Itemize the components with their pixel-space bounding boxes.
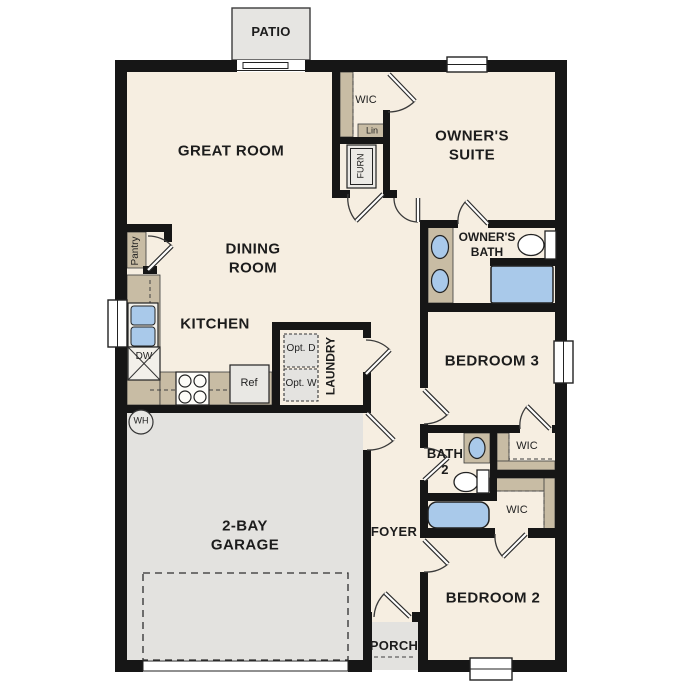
- owners-wic-shelf: [340, 72, 353, 137]
- bedroom2-label: BEDROOM 2: [446, 590, 540, 609]
- owners-suite-window: [447, 57, 487, 72]
- garage-door-opening: [143, 661, 348, 671]
- owners-bath-sink-2: [432, 270, 449, 293]
- bath2-label: BATH 2: [422, 446, 468, 479]
- dining-room-label: DINING ROOM: [203, 240, 303, 278]
- owners-bath-label: OWNER'S BATH: [452, 230, 522, 260]
- wic-bedroom3-label: WIC: [516, 440, 537, 454]
- foyer-label: FOYER: [371, 524, 417, 540]
- bath2-sink: [469, 438, 485, 459]
- dishwasher-label: DW: [136, 351, 153, 364]
- linen-label: Lin: [366, 125, 378, 136]
- kitchen-window: [108, 300, 127, 347]
- owners-suite-label: OWNER'S SUITE: [417, 127, 527, 165]
- owners-bath-tub: [491, 266, 553, 303]
- floor-plan-drawing: [0, 0, 687, 687]
- range-stove: [176, 372, 209, 405]
- owners-bath-sink-1: [432, 236, 449, 259]
- laundry-label: LAUNDRY: [324, 337, 339, 395]
- kitchen-sink: [128, 303, 158, 347]
- pantry-label: Pantry: [130, 237, 143, 266]
- wic-bedroom2-shelf-right: [544, 478, 555, 532]
- porch-label: PORCH: [370, 638, 418, 654]
- bedroom3-window: [554, 341, 573, 383]
- bedroom2-window: [470, 658, 512, 680]
- furnace-label: FURN: [355, 154, 366, 179]
- bath2-tub: [428, 502, 489, 528]
- bedroom3-label: BEDROOM 3: [445, 353, 539, 372]
- great-room-label: GREAT ROOM: [176, 143, 286, 162]
- floor-plan: PATIO GREAT ROOM WIC Lin FURN OWNER'S SU…: [0, 0, 687, 687]
- patio-label: PATIO: [251, 24, 290, 40]
- wic-bedroom3-shelf-bottom: [497, 461, 555, 470]
- kitchen-label: KITCHEN: [180, 316, 249, 335]
- wic-bedroom2-label: WIC: [506, 504, 527, 518]
- water-heater-label: WH: [134, 415, 149, 426]
- refrigerator-label: Ref: [240, 377, 257, 391]
- patio-slider-door: [237, 60, 305, 72]
- owners-wic-label: WIC: [355, 94, 376, 108]
- optional-washer-label: Opt. W: [284, 378, 318, 391]
- optional-dryer-label: Opt. D: [284, 343, 318, 356]
- garage-label: 2-BAY GARAGE: [190, 517, 300, 555]
